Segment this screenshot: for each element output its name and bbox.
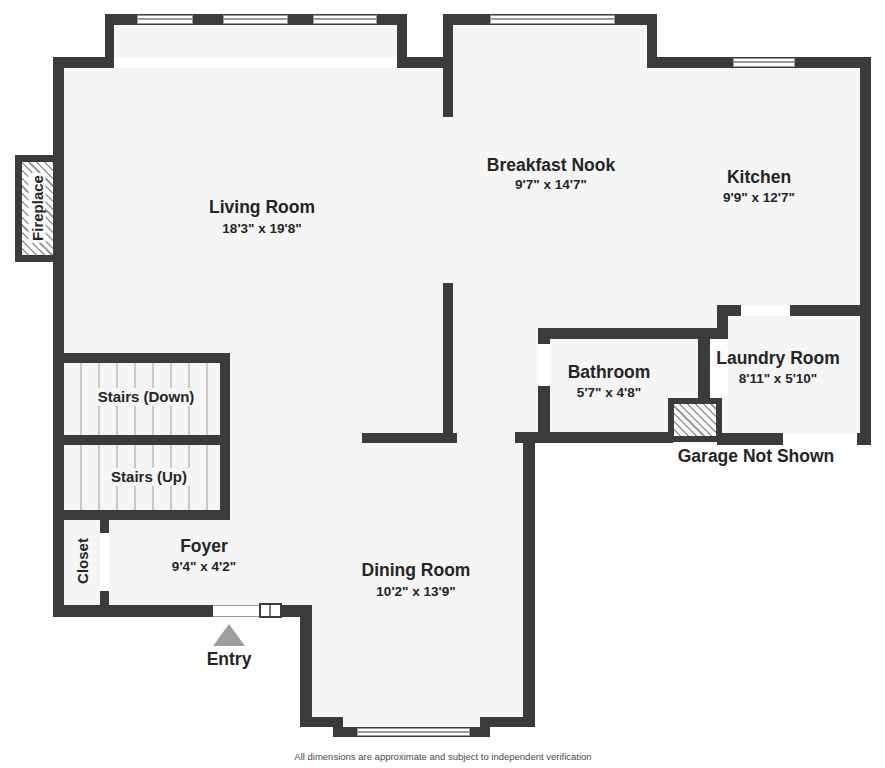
wall-segment xyxy=(717,305,741,316)
floor-plan: Living Room 18'3" x 19'8" Breakfast Nook… xyxy=(0,0,885,768)
wall-segment xyxy=(647,14,657,63)
kitchen-label: Kitchen xyxy=(727,169,791,187)
wall-segment xyxy=(860,57,871,445)
fireplace-label: Fireplace xyxy=(29,173,46,243)
breakfast-nook-label: Breakfast Nook xyxy=(487,157,615,175)
wall-segment xyxy=(538,328,550,344)
entry-door-opening xyxy=(213,605,260,617)
wall-segment xyxy=(53,57,64,617)
wall-segment xyxy=(53,353,230,363)
entry-label: Entry xyxy=(207,651,252,669)
wall-segment xyxy=(515,432,673,443)
foyer-label: Foyer xyxy=(180,538,228,556)
kitchen-dims: 9'9" x 12'7" xyxy=(723,191,795,205)
disclaimer-text: All dimensions are approximate and subje… xyxy=(294,752,591,762)
wall-segment xyxy=(397,14,407,63)
floor-area xyxy=(114,25,397,57)
window-icon xyxy=(357,728,470,736)
laundry-room-label: Laundry Room xyxy=(716,350,839,368)
wall-segment xyxy=(362,433,457,443)
closet-door-opening xyxy=(100,533,109,591)
dining-room-label: Dining Room xyxy=(362,562,471,580)
bathroom-label: Bathroom xyxy=(568,364,651,382)
wall-segment xyxy=(790,305,871,316)
entry-arrow-icon xyxy=(213,624,245,646)
window-icon xyxy=(137,15,193,24)
window-icon xyxy=(313,15,377,24)
wall-segment xyxy=(100,518,109,533)
garage-note-label: Garage Not Shown xyxy=(678,448,835,466)
foyer-dims: 9'4" x 4'2" xyxy=(172,560,236,574)
wall-segment xyxy=(523,441,535,727)
wall-segment xyxy=(105,14,114,63)
window-icon xyxy=(733,58,795,67)
garage-door-opening xyxy=(783,433,857,445)
bathroom-door-opening xyxy=(538,344,550,386)
living-room-label: Living Room xyxy=(209,199,315,217)
living-room-dims: 18'3" x 19'8" xyxy=(222,222,301,236)
wall-segment xyxy=(480,717,535,727)
utility-hatch xyxy=(674,404,716,436)
stairs-up-label: Stairs (Up) xyxy=(106,468,192,486)
window-icon xyxy=(490,15,615,24)
wall-segment xyxy=(300,605,312,727)
wall-segment xyxy=(857,433,871,445)
laundry-room-dims: 8'11" x 5'10" xyxy=(739,372,818,386)
wall-segment xyxy=(53,510,225,520)
entry-door-icon xyxy=(259,603,282,618)
window-icon xyxy=(223,15,288,24)
wall-segment xyxy=(443,283,453,443)
wall-segment xyxy=(698,328,710,404)
wall-segment xyxy=(53,605,213,617)
dining-room-dims: 10'2" x 13'9" xyxy=(376,585,455,599)
wall-segment xyxy=(443,14,453,117)
breakfast-nook-dims: 9'7" x 14'7" xyxy=(515,178,587,192)
wall-segment xyxy=(717,433,783,445)
closet-label: Closet xyxy=(75,538,90,584)
wall-segment xyxy=(53,435,230,445)
stairs-down-label: Stairs (Down) xyxy=(93,388,200,406)
bathroom-dims: 5'7" x 4'8" xyxy=(577,386,641,400)
laundry-top-opening xyxy=(741,305,790,316)
